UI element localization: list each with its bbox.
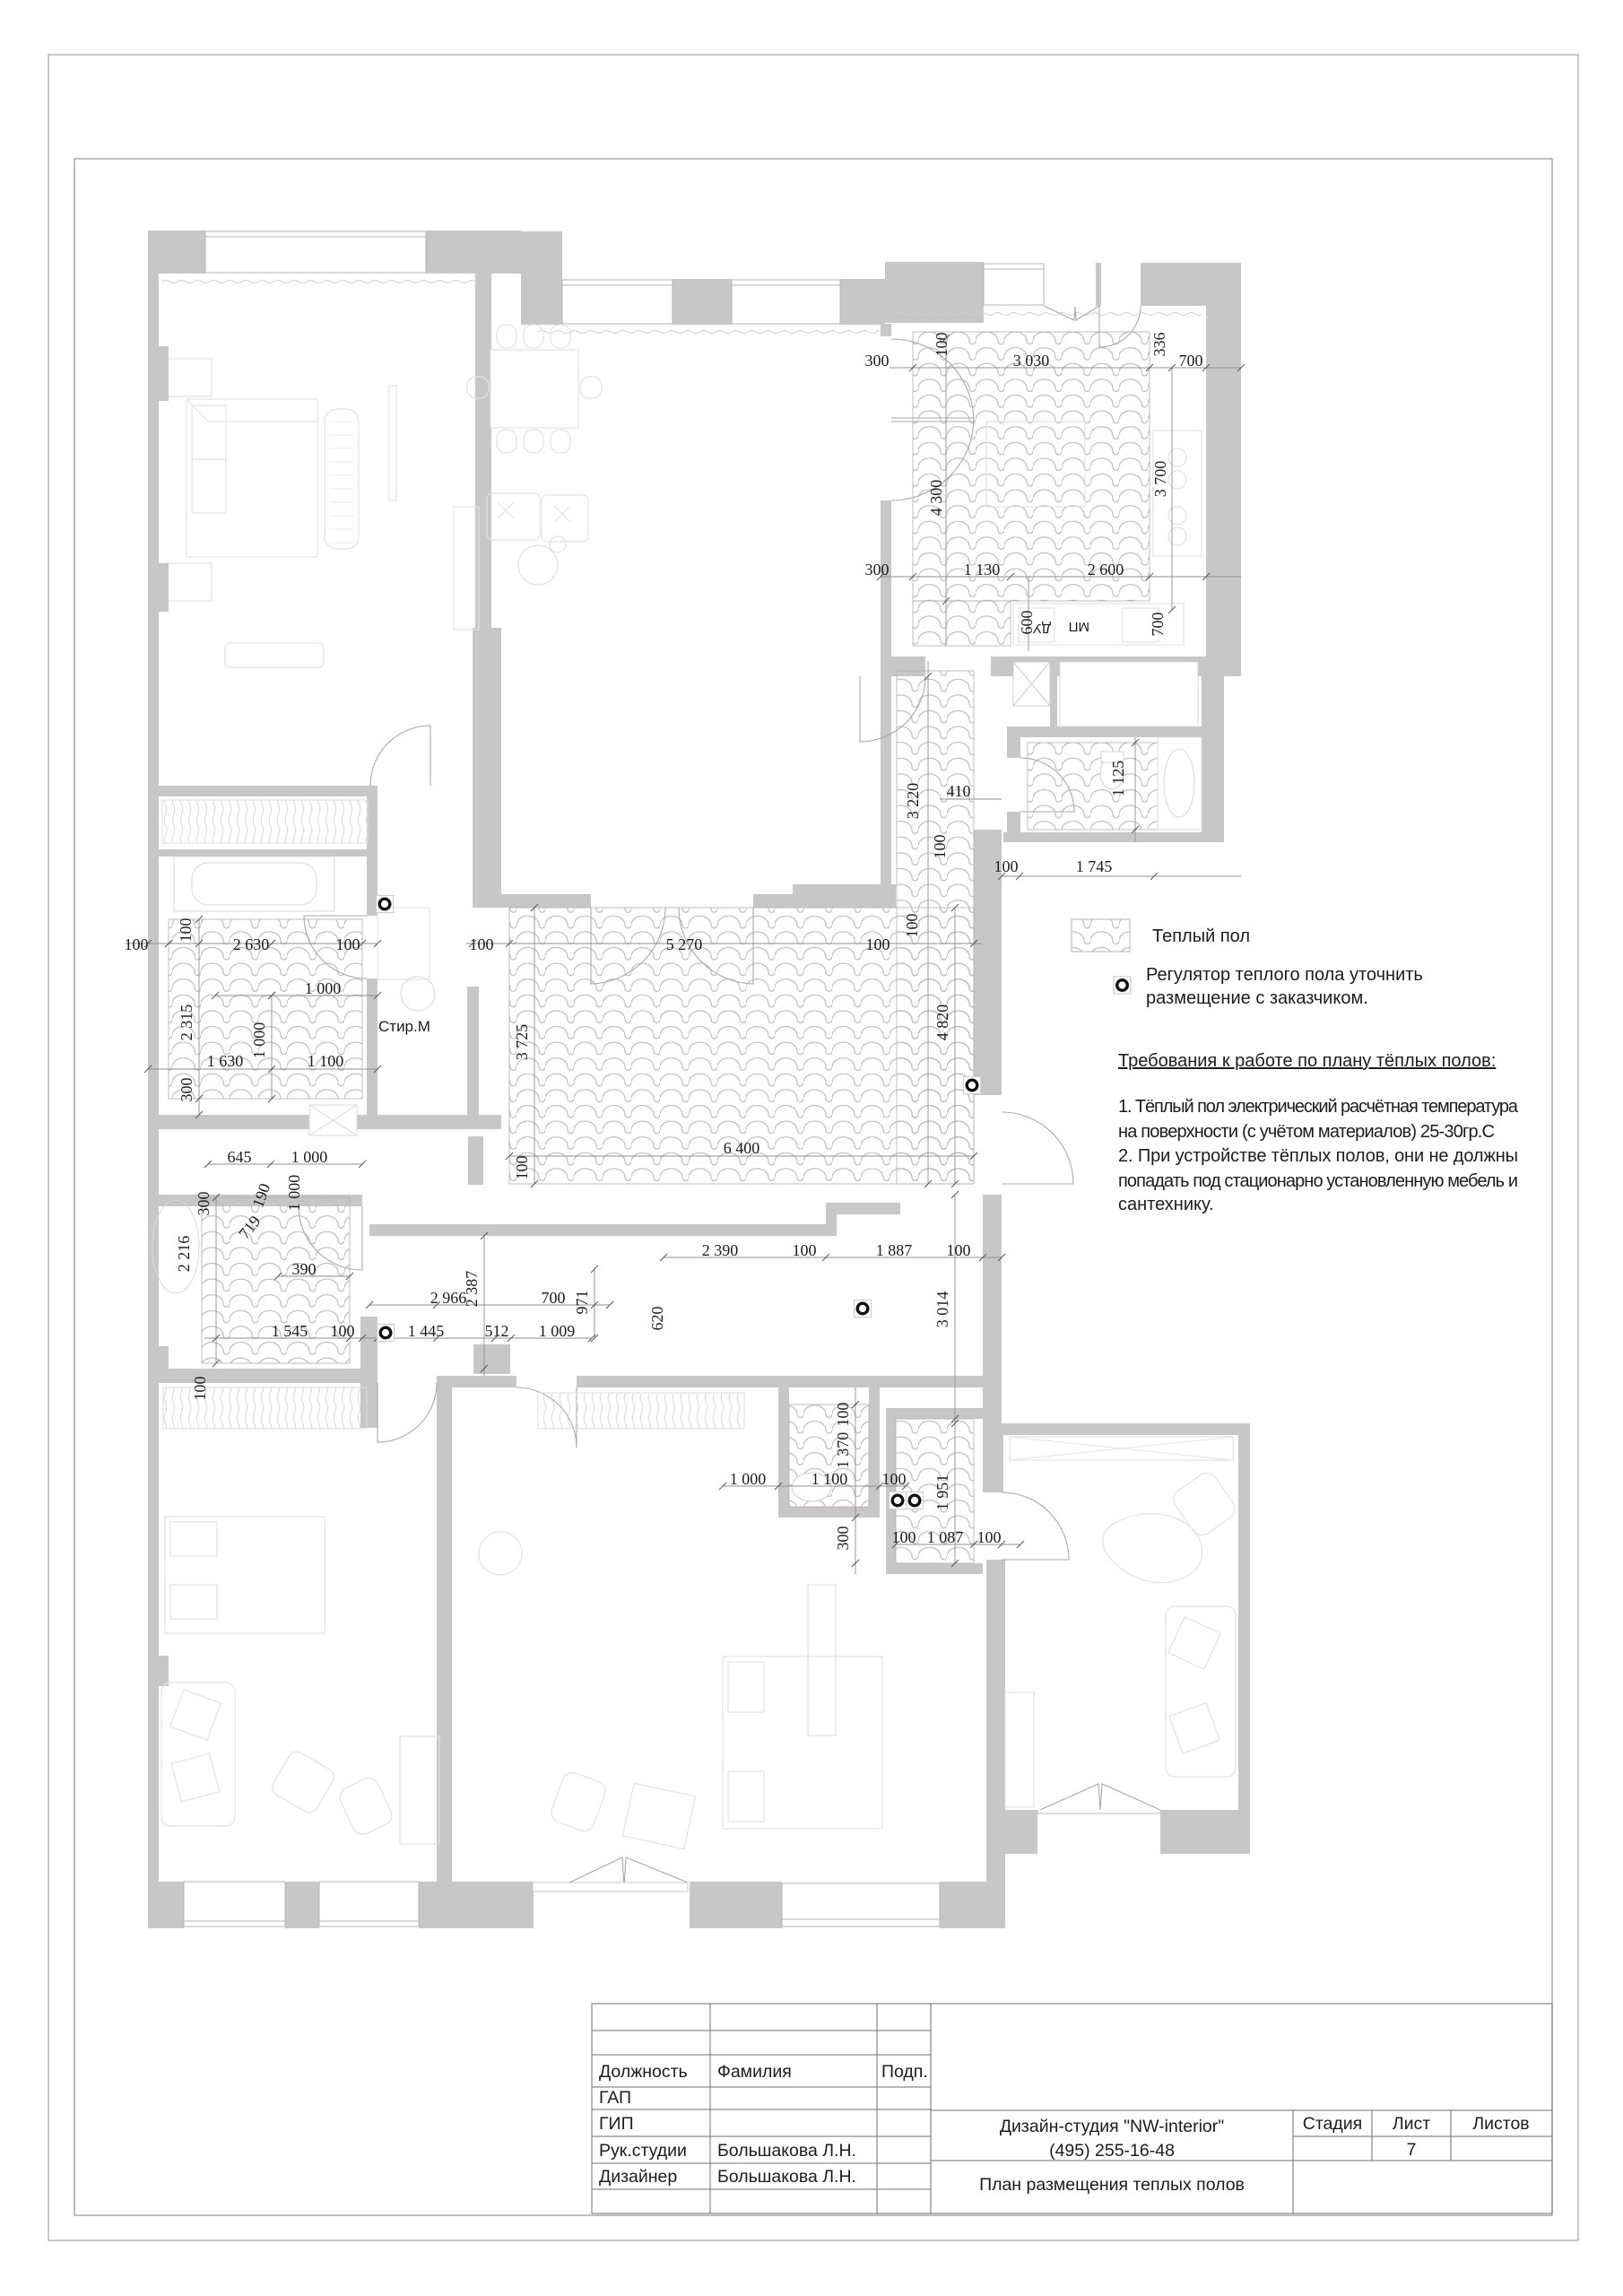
svg-text:300: 300 [178, 1078, 195, 1102]
svg-text:1 000: 1 000 [291, 1148, 328, 1166]
svg-text:Рук.студии: Рук.студии [599, 2141, 687, 2161]
svg-text:1 100: 1 100 [308, 1052, 344, 1070]
svg-text:336: 336 [1150, 333, 1168, 357]
svg-text:Должность: Должность [599, 2062, 688, 2082]
svg-text:2. При устройстве тёплых п: 2. При устройстве тёплых полов, они не д… [1118, 1146, 1518, 1166]
svg-text:100: 100 [947, 1241, 971, 1259]
svg-text:620: 620 [648, 1307, 666, 1331]
svg-text:1 630: 1 630 [207, 1052, 244, 1070]
svg-text:100: 100 [513, 1156, 531, 1180]
svg-text:Большакова Л.Н.: Большакова Л.Н. [717, 2167, 856, 2187]
svg-text:100: 100 [177, 918, 195, 943]
svg-text:100: 100 [994, 857, 1019, 875]
svg-text:100: 100 [125, 935, 149, 953]
svg-text:100: 100 [882, 1470, 907, 1488]
svg-text:512: 512 [485, 1322, 509, 1340]
svg-text:1 445: 1 445 [408, 1322, 445, 1340]
svg-text:ГИП: ГИП [599, 2114, 634, 2134]
svg-text:1 125: 1 125 [1109, 761, 1127, 797]
svg-text:3 030: 3 030 [1013, 352, 1050, 370]
svg-text:размещение с заказчиком.: размещение с заказчиком. [1146, 988, 1368, 1008]
svg-text:390: 390 [292, 1260, 317, 1278]
svg-text:Стир.М: Стир.М [378, 1018, 430, 1035]
svg-text:700: 700 [542, 1289, 566, 1307]
svg-text:100: 100 [977, 1528, 1002, 1546]
svg-text:100: 100 [793, 1241, 817, 1259]
svg-text:3 014: 3 014 [933, 1291, 951, 1328]
svg-text:Фамилия: Фамилия [717, 2062, 792, 2082]
svg-text:4 300: 4 300 [927, 480, 945, 517]
svg-text:Требования к работе по плану т: Требования к работе по плану тёплых поло… [1118, 1051, 1496, 1071]
svg-text:100: 100 [191, 1377, 209, 1401]
svg-text:7: 7 [1407, 2140, 1417, 2160]
svg-text:1 100: 1 100 [811, 1470, 848, 1488]
svg-text:(495) 255-16-48: (495) 255-16-48 [1049, 2141, 1175, 2161]
svg-text:2 216: 2 216 [175, 1236, 193, 1273]
svg-text:2 600: 2 600 [1088, 561, 1124, 578]
svg-text:Дизайнер: Дизайнер [599, 2167, 677, 2187]
svg-text:2 966: 2 966 [430, 1289, 467, 1307]
svg-text:Теплый пол: Теплый пол [1152, 926, 1250, 946]
svg-text:600: 600 [1018, 611, 1036, 635]
svg-text:1 130: 1 130 [964, 561, 1001, 578]
svg-text:1 000: 1 000 [305, 979, 342, 997]
svg-text:2 387: 2 387 [463, 1271, 481, 1308]
svg-text:3 700: 3 700 [1151, 461, 1169, 498]
svg-text:100: 100 [931, 835, 949, 859]
svg-text:300: 300 [865, 561, 890, 578]
svg-text:попадать под стационарно ус: попадать под стационарно установленную м… [1118, 1171, 1518, 1191]
svg-text:1 087: 1 087 [927, 1528, 964, 1546]
svg-text:Дизайн-студия "NW-interior": Дизайн-студия "NW-interior" [1000, 2117, 1224, 2136]
svg-text:Большакова Л.Н.: Большакова Л.Н. [717, 2141, 856, 2161]
svg-text:700: 700 [1149, 613, 1167, 637]
svg-text:300: 300 [834, 1526, 852, 1551]
svg-text:1 370: 1 370 [834, 1432, 852, 1469]
svg-text:3 725: 3 725 [513, 1024, 531, 1061]
svg-text:1 000: 1 000 [250, 1022, 268, 1059]
svg-text:100: 100 [903, 914, 921, 938]
svg-text:ГАП: ГАП [599, 2088, 631, 2108]
svg-text:1 545: 1 545 [272, 1322, 308, 1340]
svg-text:2 390: 2 390 [702, 1241, 739, 1259]
svg-text:1 000: 1 000 [730, 1470, 767, 1488]
svg-text:1. Тёплый пол электрический: 1. Тёплый пол электрический расчётная те… [1118, 1097, 1519, 1117]
svg-text:4 820: 4 820 [933, 1004, 951, 1041]
svg-text:Стадия: Стадия [1303, 2114, 1362, 2134]
svg-text:5 270: 5 270 [666, 935, 703, 953]
svg-text:Листов: Листов [1472, 2114, 1529, 2134]
svg-text:2 315: 2 315 [178, 1004, 195, 1041]
svg-text:300: 300 [195, 1192, 213, 1216]
svg-text:сантехнику.: сантехнику. [1118, 1195, 1214, 1214]
svg-text:МП: МП [1069, 619, 1089, 634]
svg-text:100: 100 [866, 935, 890, 953]
svg-text:700: 700 [1179, 352, 1203, 370]
svg-text:6 400: 6 400 [724, 1139, 760, 1157]
svg-text:410: 410 [947, 782, 971, 800]
svg-text:300: 300 [865, 352, 890, 370]
svg-text:100: 100 [470, 935, 494, 953]
svg-text:645: 645 [228, 1148, 252, 1166]
svg-text:971: 971 [573, 1291, 591, 1315]
svg-text:1 000: 1 000 [285, 1175, 303, 1212]
svg-text:1 009: 1 009 [539, 1322, 576, 1340]
svg-text:2 630: 2 630 [233, 935, 270, 953]
svg-text:1 887: 1 887 [876, 1241, 913, 1259]
svg-text:Регулятор теплого пола уточнит: Регулятор теплого пола уточнить [1146, 965, 1423, 985]
svg-text:1 745: 1 745 [1076, 857, 1113, 875]
svg-text:100: 100 [892, 1528, 916, 1546]
svg-text:на поверхности (с учётом мате: на поверхности (с учётом материалов) 25-… [1118, 1122, 1495, 1142]
svg-text:100: 100 [336, 935, 360, 953]
svg-text:План размещения теплых полов: План размещения теплых полов [979, 2175, 1245, 2195]
svg-text:Подп.: Подп. [881, 2062, 928, 2082]
svg-text:3 220: 3 220 [904, 783, 922, 820]
svg-text:1 951: 1 951 [933, 1474, 951, 1511]
svg-text:Лист: Лист [1393, 2114, 1430, 2134]
svg-text:100: 100 [834, 1403, 852, 1427]
